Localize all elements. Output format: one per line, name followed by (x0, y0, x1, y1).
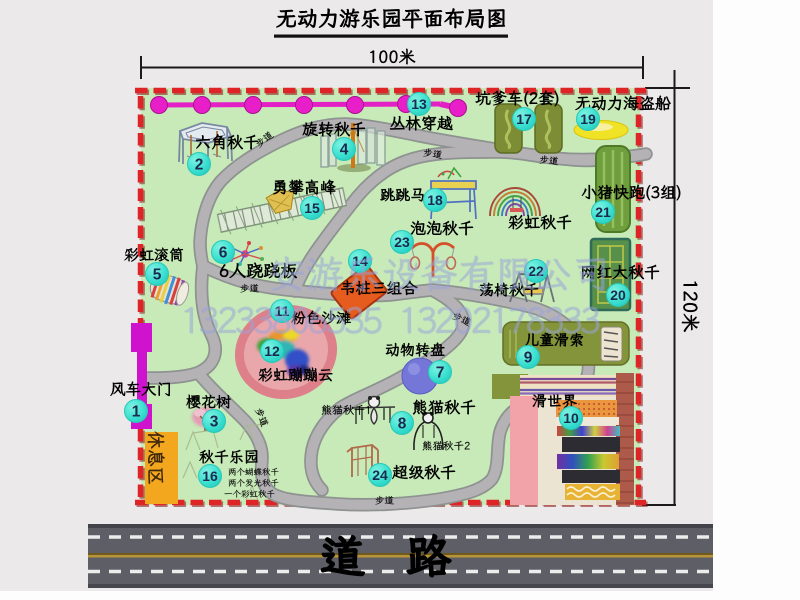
svg-text:2: 2 (195, 157, 204, 174)
svg-text:6: 6 (219, 245, 228, 262)
svg-text:9: 9 (524, 350, 533, 367)
svg-text:15: 15 (304, 200, 320, 216)
svg-text:13: 13 (411, 96, 427, 112)
svg-text:4: 4 (340, 142, 349, 159)
svg-text:19: 19 (580, 111, 596, 127)
svg-text:1: 1 (132, 404, 141, 421)
svg-text:5: 5 (153, 267, 162, 284)
svg-text:16: 16 (202, 468, 218, 484)
svg-text:18: 18 (427, 192, 443, 208)
svg-text:21: 21 (595, 204, 611, 220)
svg-text:24: 24 (372, 467, 388, 483)
svg-text:23: 23 (394, 234, 410, 250)
svg-text:3: 3 (210, 414, 219, 431)
svg-text:7: 7 (436, 365, 445, 382)
svg-text:12: 12 (264, 343, 280, 359)
svg-text:20: 20 (610, 287, 626, 303)
svg-text:17: 17 (516, 111, 532, 127)
svg-text:10: 10 (563, 410, 579, 426)
svg-text:8: 8 (398, 416, 407, 433)
